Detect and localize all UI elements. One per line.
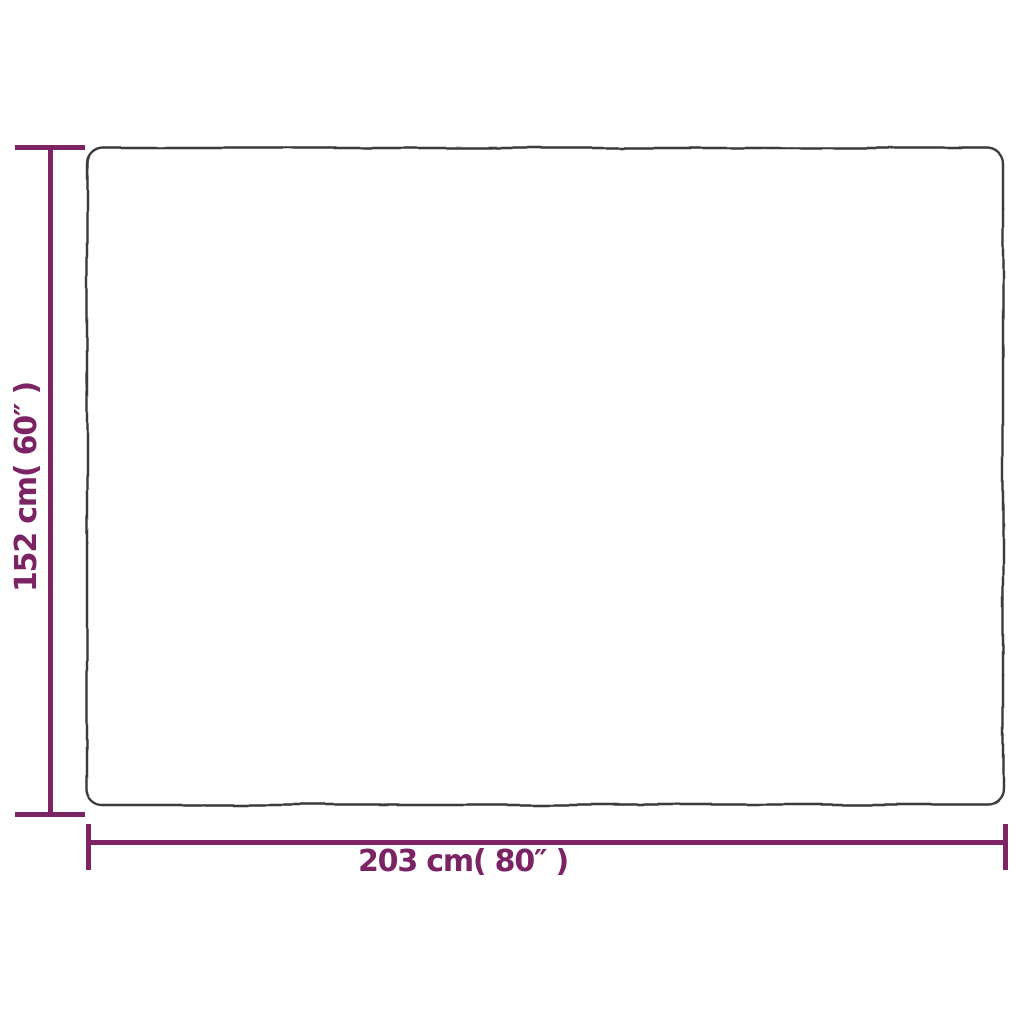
height-dimension-label: 152 cm( 60″ )	[9, 377, 45, 597]
height-dimension-tick-top	[15, 145, 85, 150]
width-dimension-tick-left	[86, 824, 91, 870]
width-dimension-label: 203 cm( 80″ )	[358, 844, 568, 880]
dimension-diagram-canvas: 152 cm( 60″ ) 203 cm( 80″ )	[0, 0, 1024, 1024]
height-dimension-line	[48, 147, 53, 814]
product-outline-rect	[87, 148, 1003, 805]
height-dimension-tick-bottom	[15, 812, 85, 817]
width-dimension-tick-right	[1003, 824, 1008, 870]
